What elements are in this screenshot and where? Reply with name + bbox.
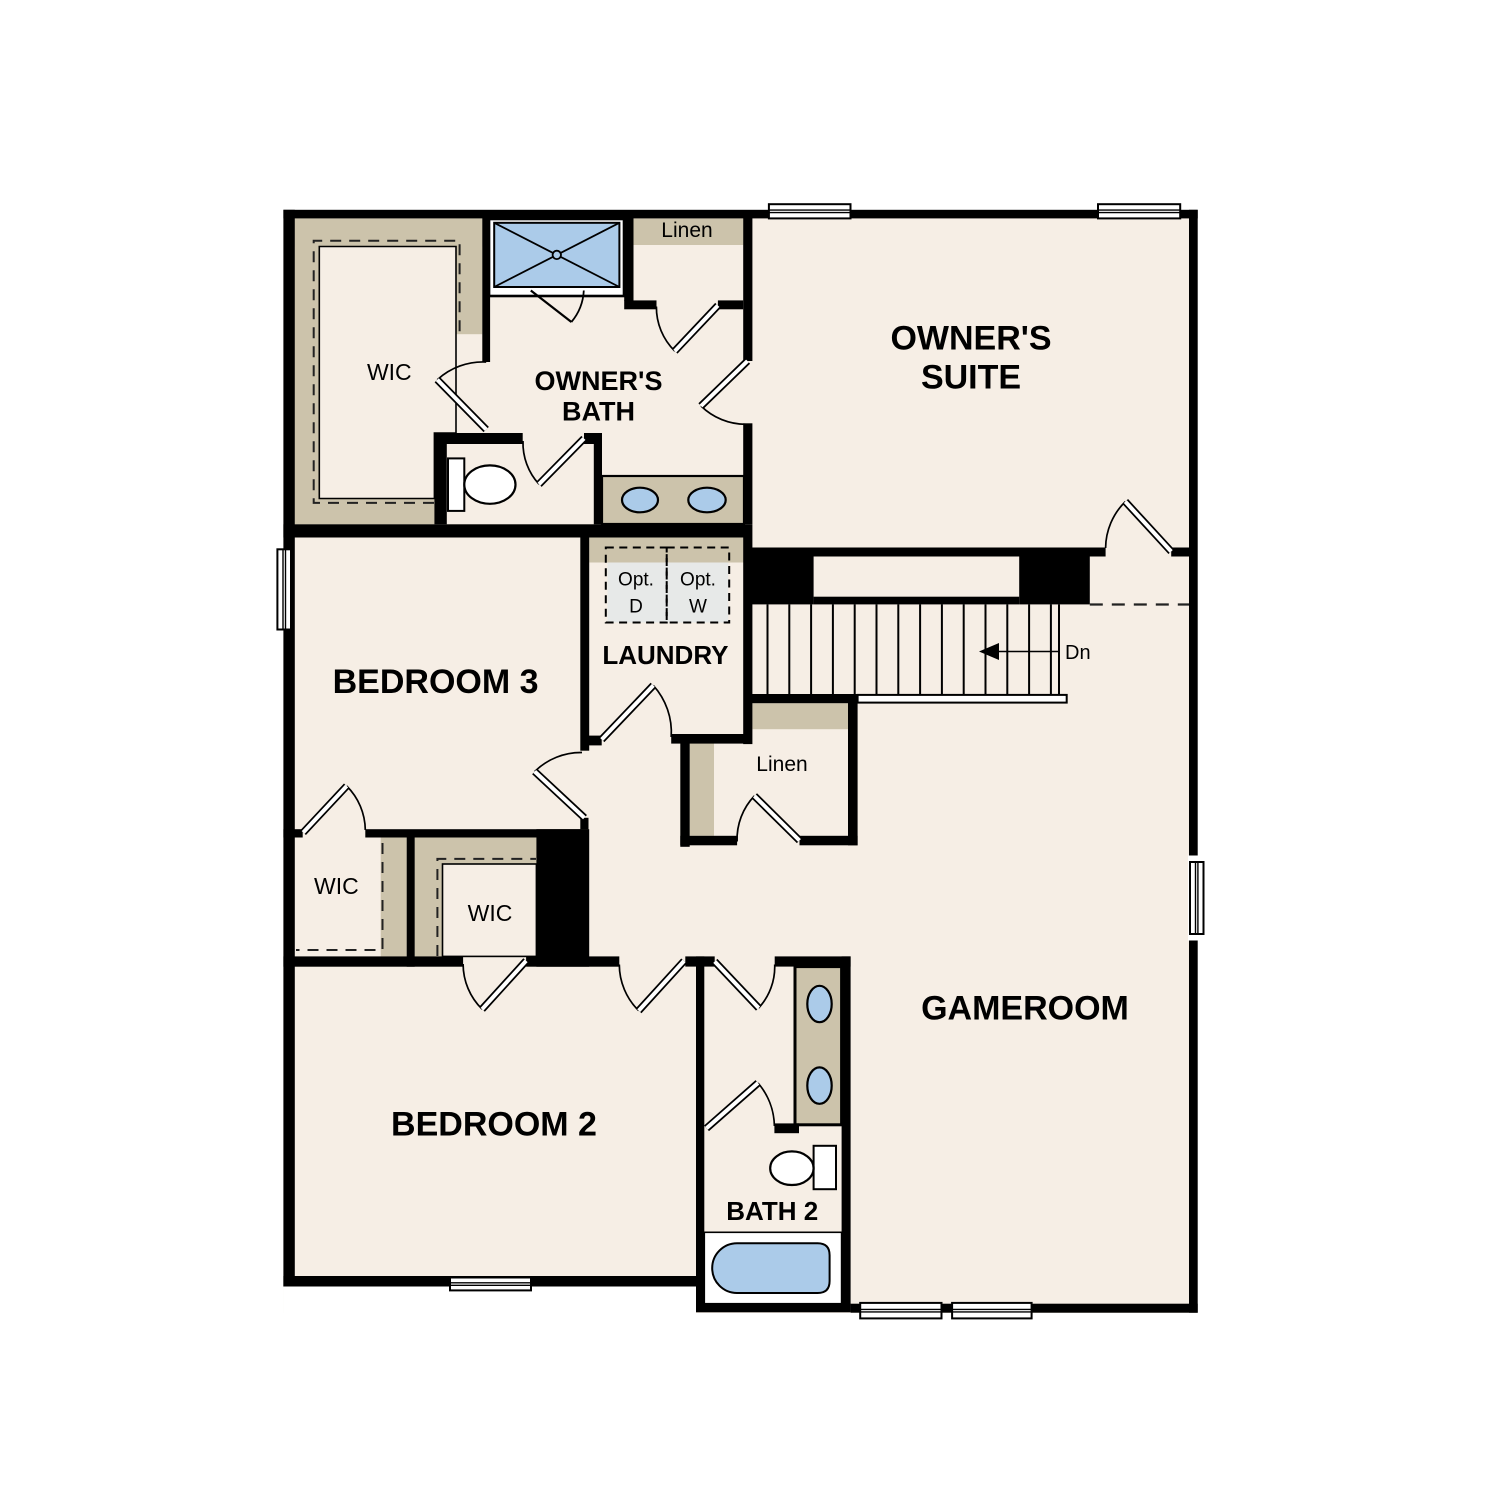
svg-text:OWNER'S: OWNER'S bbox=[535, 366, 663, 396]
svg-text:Dn: Dn bbox=[1065, 642, 1091, 664]
svg-text:OWNER'S: OWNER'S bbox=[890, 319, 1051, 357]
svg-text:W: W bbox=[689, 597, 707, 618]
svg-text:Linen: Linen bbox=[756, 753, 807, 776]
svg-text:BEDROOM 3: BEDROOM 3 bbox=[333, 663, 539, 701]
svg-text:WIC: WIC bbox=[367, 359, 412, 385]
svg-text:D: D bbox=[629, 597, 643, 618]
svg-text:SUITE: SUITE bbox=[921, 359, 1021, 397]
svg-text:WIC: WIC bbox=[314, 873, 359, 899]
svg-text:GAMEROOM: GAMEROOM bbox=[921, 989, 1129, 1027]
svg-text:WIC: WIC bbox=[468, 900, 513, 926]
svg-text:BEDROOM 2: BEDROOM 2 bbox=[391, 1106, 597, 1144]
svg-text:Opt.: Opt. bbox=[680, 570, 716, 591]
svg-text:BATH 2: BATH 2 bbox=[726, 1196, 818, 1226]
svg-text:Opt.: Opt. bbox=[618, 570, 654, 591]
svg-text:BATH: BATH bbox=[562, 396, 635, 426]
svg-text:Linen: Linen bbox=[661, 219, 712, 242]
svg-text:LAUNDRY: LAUNDRY bbox=[602, 640, 728, 670]
